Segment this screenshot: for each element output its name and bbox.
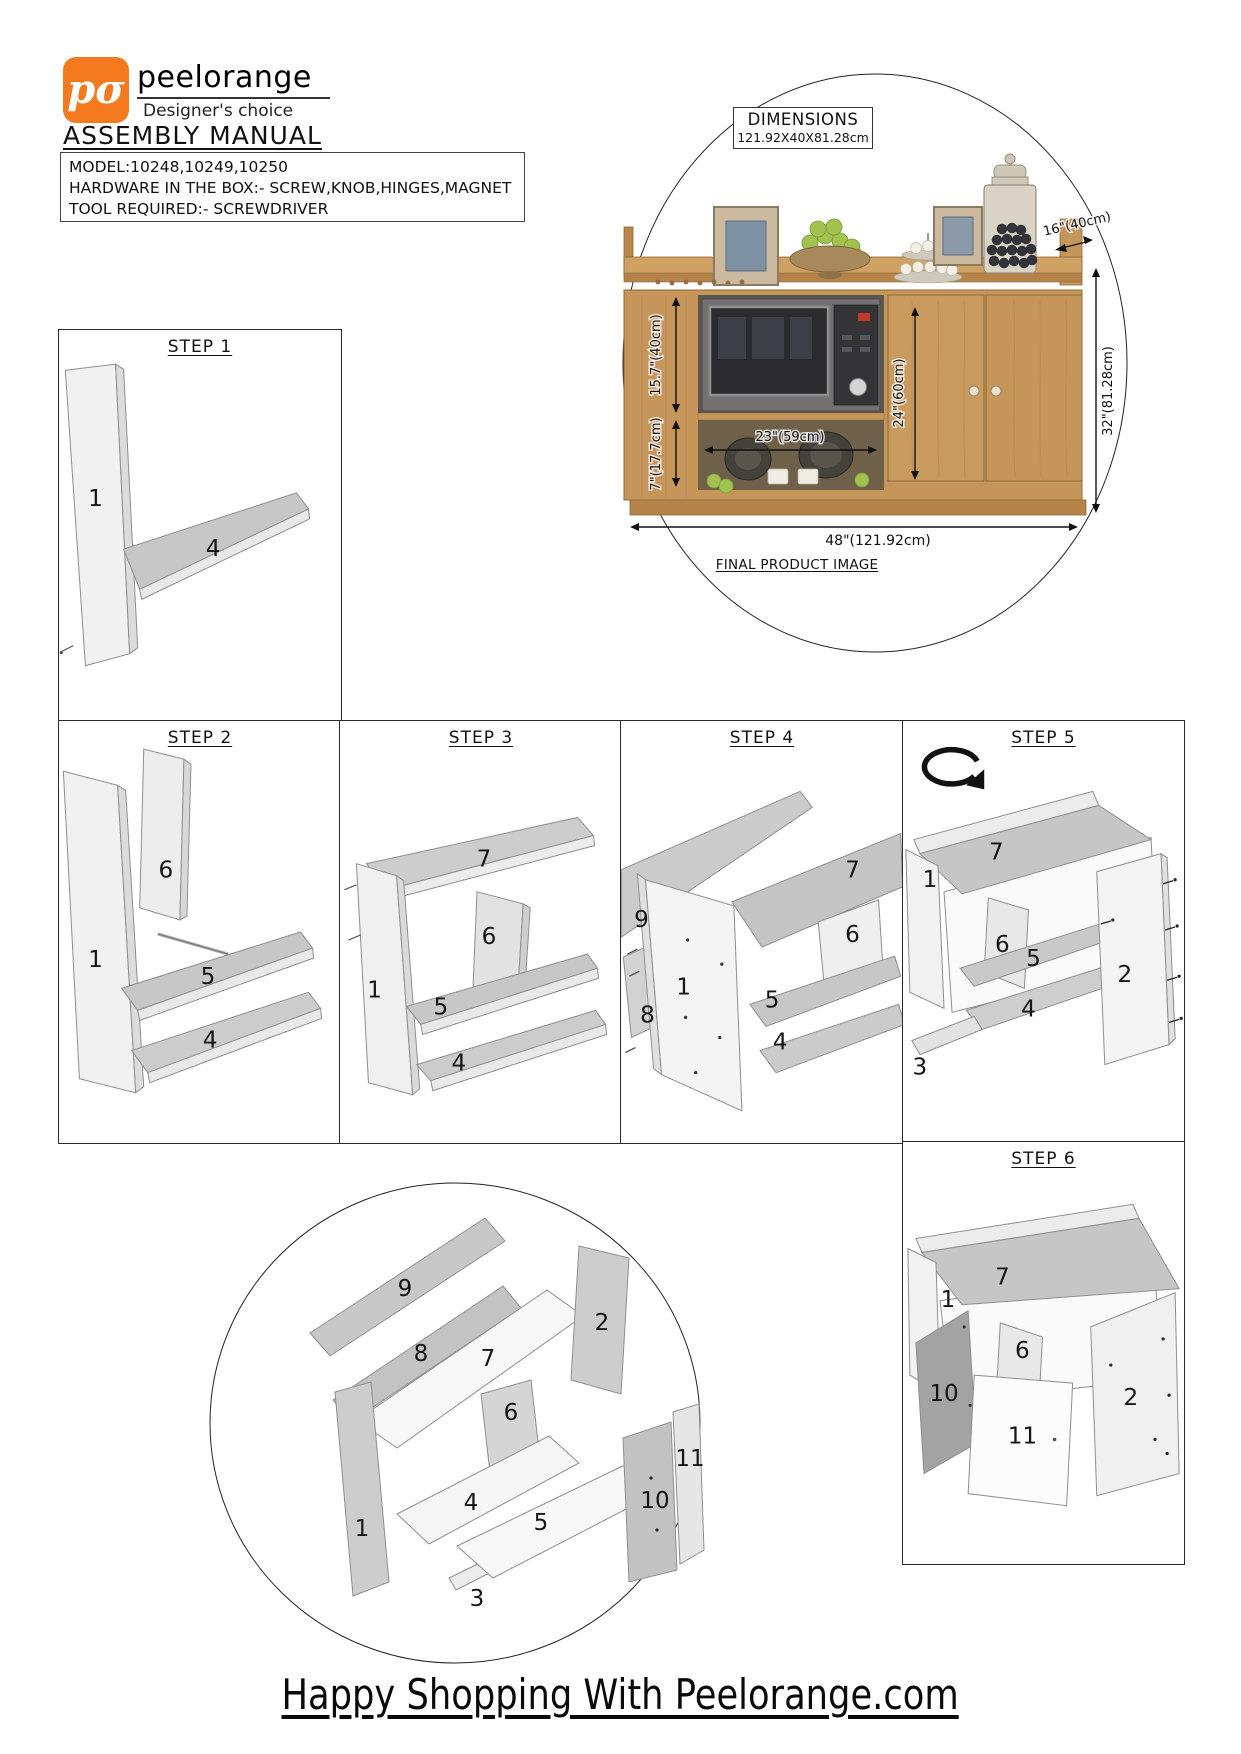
- middle-shelf: [698, 413, 884, 420]
- step-2-diagram: 1 6 5 4: [59, 721, 341, 1143]
- dim-upper-height: 15.7"(40cm): [649, 314, 664, 395]
- part-label: 4: [203, 1028, 218, 1054]
- part-label: 11: [675, 1446, 704, 1472]
- part-label: 10: [640, 1488, 669, 1514]
- dimensions-label: DIMENSIONS: [736, 110, 870, 129]
- part-label: 4: [464, 1490, 479, 1516]
- step-4-diagram: 9 8 1 7 6 5 4: [621, 721, 903, 1143]
- footer: Happy Shopping With Peelorange.com: [0, 1670, 1241, 1719]
- part-label: 8: [640, 1002, 655, 1028]
- part-label: 6: [995, 932, 1010, 958]
- part-label: 1: [355, 1516, 370, 1542]
- part-label: 5: [1026, 946, 1041, 972]
- part-label: 3: [470, 1586, 485, 1612]
- hardware-line: HARDWARE IN THE BOX:- SCREW,KNOB,HINGES,…: [69, 178, 516, 199]
- part-label: 1: [941, 1287, 956, 1313]
- step-3-box: STEP 3 7 6 1 5 4: [339, 720, 623, 1144]
- brand-name: peelorange: [137, 60, 330, 99]
- model-line: MODEL:10248,10249,10250: [69, 157, 516, 178]
- part-label: 7: [989, 840, 1004, 866]
- decor-frame-right: [934, 207, 982, 265]
- part-label: 6: [504, 1400, 519, 1426]
- part-label: 1: [88, 486, 103, 512]
- tool-line: TOOL REQUIRED:- SCREWDRIVER: [69, 199, 516, 220]
- part-label: 2: [1118, 962, 1133, 988]
- door-knob-right: [991, 386, 1001, 396]
- part-label: 2: [1124, 1385, 1139, 1411]
- dimensions-box: DIMENSIONS 121.92X40X81.28cm: [733, 107, 873, 149]
- step-6-diagram: 7 1 6 10 11 2: [903, 1142, 1184, 1564]
- part-label: 7: [845, 858, 860, 884]
- part-label: 5: [765, 987, 780, 1013]
- part-label: 1: [367, 977, 382, 1003]
- part-label: 4: [773, 1030, 788, 1056]
- dimensions-value: 121.92X40X81.28cm: [736, 130, 870, 145]
- part-label: 5: [534, 1510, 549, 1536]
- part-label: 2: [595, 1310, 610, 1336]
- part-label: 6: [1015, 1338, 1030, 1364]
- final-product-caption: FINAL PRODUCT IMAGE: [682, 557, 912, 573]
- door-knob-left: [969, 386, 979, 396]
- part-label: 1: [676, 974, 691, 1000]
- part-label: 4: [206, 536, 221, 562]
- brand-tagline: Designer's choice: [143, 101, 293, 121]
- step-6-box: STEP 6 7 1 6 10 11 2: [902, 1141, 1185, 1565]
- part-label: 8: [414, 1341, 429, 1367]
- dim-door-height: 24"(60cm): [892, 358, 907, 427]
- part-label: 7: [477, 847, 492, 873]
- step-1-diagram: 1 4: [59, 330, 341, 721]
- part-label: 4: [452, 1051, 467, 1077]
- part-label: 4: [1021, 996, 1036, 1022]
- part-label: 1: [88, 947, 103, 973]
- rotate-icon: [924, 750, 984, 790]
- dim-lower-height: 7"(17.7cm): [649, 417, 664, 490]
- page-title: ASSEMBLY MANUAL: [63, 121, 322, 150]
- brand-logo: pσ: [63, 57, 129, 123]
- brand-logo-text: pσ: [67, 70, 124, 110]
- part-label: 6: [482, 924, 497, 950]
- step-5-box: STEP 5 7 1 6 5 4 3 2: [902, 720, 1185, 1144]
- step-4-box: STEP 4 9 8 1 7 6 5 4: [620, 720, 904, 1144]
- exploded-parts-diagram: 9 8 7 2 6 4 5 1 3 10 11: [205, 1178, 705, 1668]
- footer-text: Happy Shopping With Peelorange.com: [282, 1670, 959, 1719]
- part-label: 9: [634, 907, 649, 933]
- info-box: MODEL:10248,10249,10250 HARDWARE IN THE …: [60, 152, 525, 222]
- microwave: [698, 295, 884, 415]
- part-label: 11: [1008, 1423, 1037, 1449]
- part-label: 6: [158, 858, 173, 884]
- dim-overall-height: 32"(81.28cm): [1101, 346, 1116, 436]
- step-2-box: STEP 2 1 6 5 4: [58, 720, 342, 1144]
- part-label: 7: [995, 1265, 1010, 1291]
- part-label: 3: [913, 1055, 928, 1081]
- dim-shelf-width: 23"(59cm): [755, 430, 824, 445]
- cabinet-plinth: [630, 500, 1086, 515]
- part-label: 10: [929, 1381, 958, 1407]
- step-1-box: STEP 1 1 4: [58, 329, 342, 722]
- part-label: 5: [433, 994, 448, 1020]
- part-label: 7: [481, 1346, 496, 1372]
- part-label: 6: [845, 922, 860, 948]
- part-label: 9: [398, 1276, 413, 1302]
- dim-overall-width: 48"(121.92cm): [825, 533, 931, 549]
- part-label: 5: [201, 964, 216, 990]
- step-5-diagram: 7 1 6 5 4 3 2: [903, 721, 1184, 1143]
- part-label: 1: [923, 867, 938, 893]
- decor-frame-left: [714, 207, 778, 285]
- step-3-diagram: 7 6 1 5 4: [340, 721, 622, 1143]
